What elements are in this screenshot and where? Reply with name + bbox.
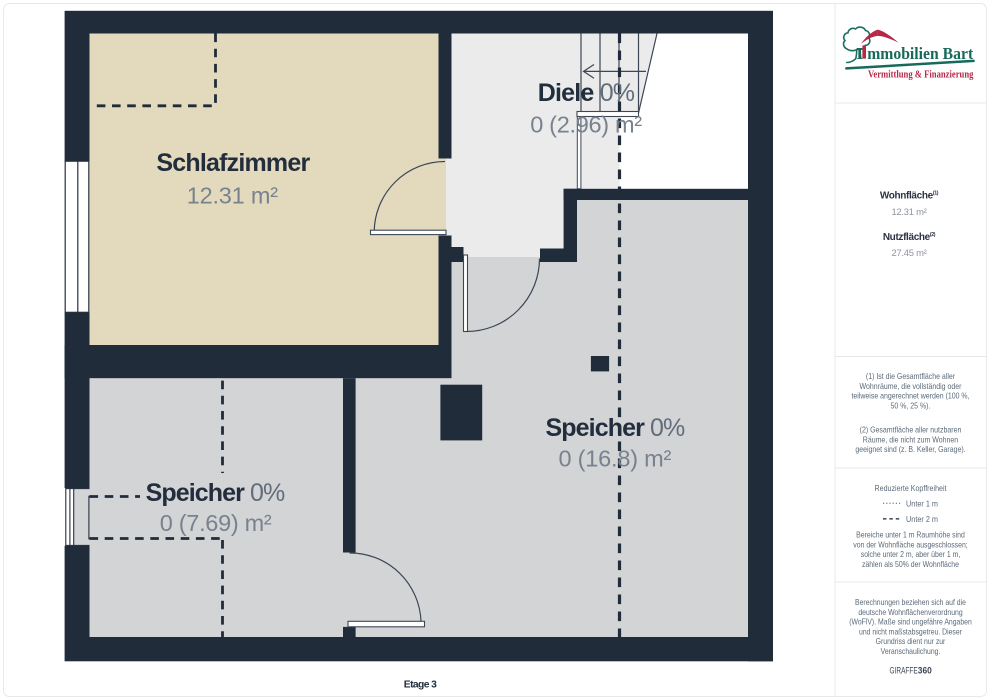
svg-text:(WoFlV). Maße sind ungefähre A: (WoFlV). Maße sind ungefähre Angaben	[849, 617, 972, 627]
svg-text:mmobilien Bart: mmobilien Bart	[867, 44, 973, 63]
svg-text:Berechnungen beziehen sich auf: Berechnungen beziehen sich auf die	[855, 597, 966, 607]
svg-text:Etage 3: Etage 3	[404, 679, 437, 690]
svg-text:12.31 m²: 12.31 m²	[187, 183, 279, 209]
svg-text:50 %, 25 %).: 50 %, 25 %).	[891, 400, 931, 410]
svg-text:Veranschaulichung.: Veranschaulichung.	[881, 646, 941, 656]
svg-text:Unter 1 m: Unter 1 m	[906, 499, 938, 509]
svg-text:I: I	[856, 44, 863, 63]
svg-text:solche unter 2 m, aber über 1: solche unter 2 m, aber über 1 m,	[861, 549, 961, 559]
svg-text:von der Wohnfläche ausgeschlos: von der Wohnfläche ausgeschlossen;	[853, 539, 967, 549]
svg-text:Wohnfläche(1): Wohnfläche(1)	[880, 190, 939, 201]
svg-text:Speicher 0%: Speicher 0%	[146, 479, 285, 507]
svg-text:Schlafzimmer: Schlafzimmer	[156, 149, 310, 177]
svg-text:Nutzfläche(2): Nutzfläche(2)	[883, 232, 936, 243]
svg-text:deutsche Wohnflächenverordnung: deutsche Wohnflächenverordnung	[858, 607, 963, 617]
svg-text:Wohnräume, die vollständig ode: Wohnräume, die vollständig oder	[860, 381, 962, 391]
svg-text:(2) Gesamtfläche aller nutzbar: (2) Gesamtfläche aller nutzbaren	[860, 425, 962, 435]
svg-text:Bereiche unter 1 m Raumhöhe si: Bereiche unter 1 m Raumhöhe sind	[856, 530, 965, 540]
svg-text:12.31 m²: 12.31 m²	[892, 206, 927, 217]
svg-text:Speicher 0%: Speicher 0%	[546, 414, 685, 442]
svg-text:0 (16.8) m²: 0 (16.8) m²	[558, 446, 671, 472]
svg-text:Räume, die nicht zum Wohnen: Räume, die nicht zum Wohnen	[863, 434, 959, 444]
svg-text:(1) Ist die Gesamtfläche aller: (1) Ist die Gesamtfläche aller	[866, 371, 955, 381]
svg-text:zählen als 50% der Wohnfläche: zählen als 50% der Wohnfläche	[862, 559, 959, 569]
svg-text:0 (7.69) m²: 0 (7.69) m²	[160, 510, 272, 536]
svg-text:27.45 m²: 27.45 m²	[892, 247, 927, 258]
svg-text:Diele 0%: Diele 0%	[538, 79, 635, 107]
svg-text:0 (2.96) m²: 0 (2.96) m²	[530, 112, 642, 138]
svg-text:360: 360	[918, 666, 932, 676]
svg-text:teilweise angerechnet werden (: teilweise angerechnet werden (100 %,	[852, 391, 970, 401]
svg-text:Vermittlung & Finanzierung: Vermittlung & Finanzierung	[868, 69, 974, 80]
svg-text:Grundriss dient nur zur: Grundriss dient nur zur	[876, 636, 946, 646]
svg-text:GIRAFFE: GIRAFFE	[890, 666, 918, 676]
svg-text:geeignet sind (z. B. Keller, G: geeignet sind (z. B. Keller, Garage).	[855, 444, 965, 454]
svg-text:und nicht maßstabsgetreu. Dies: und nicht maßstabsgetreu. Dieser	[859, 626, 962, 636]
svg-text:Reduzierte Kopffreiheit: Reduzierte Kopffreiheit	[875, 483, 948, 493]
svg-text:Unter 2 m: Unter 2 m	[906, 514, 938, 524]
